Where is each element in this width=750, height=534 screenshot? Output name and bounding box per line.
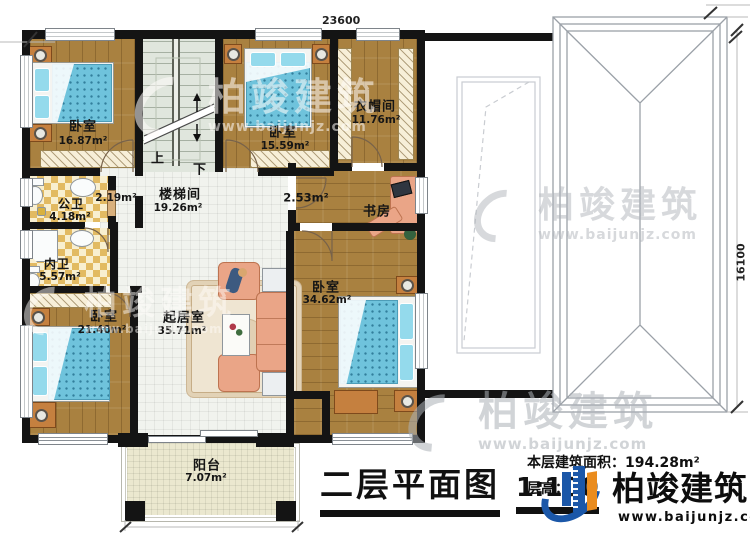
window-public-bath-left <box>20 178 33 207</box>
armchair-bottom <box>218 354 260 392</box>
bedroom4-pillow1 <box>399 303 414 340</box>
wall-bedroom3-top-a <box>22 286 106 293</box>
label-corridor-area: 2.19m² <box>95 193 136 204</box>
bedroom4-bench <box>334 390 378 414</box>
cloakroom-wardrobe-right <box>398 48 414 160</box>
window-bedroom4-right <box>415 293 428 369</box>
wall-pubbath-right-a <box>108 176 116 190</box>
label-balcony-area: 7.07m² <box>185 473 226 484</box>
stair-rail <box>172 36 180 166</box>
label-private-bath-name: 内卫 <box>44 258 70 270</box>
label-public-bath-area: 4.18m² <box>49 212 90 223</box>
public-bath-sink-icon <box>70 178 96 197</box>
balcony-slider-panel1 <box>148 436 206 443</box>
logo-swoosh-icon <box>531 457 611 534</box>
bedroom2-nightstand-left <box>224 44 242 64</box>
drawing-title-text: 二层平面图 <box>320 458 500 512</box>
window-private-bath-left <box>20 230 33 259</box>
wall-cloak-bottom-a <box>334 163 352 171</box>
label-study-name: 书房 <box>363 206 391 219</box>
bedroom1-pillow2 <box>34 95 50 119</box>
window-bedroom3-left <box>20 325 33 418</box>
label-bedroom3-area: 21.40m² <box>78 325 127 336</box>
balcony-post-right <box>276 501 296 521</box>
side-table-bottom <box>262 372 288 396</box>
dimension-right: 16100 <box>735 243 748 281</box>
label-bedroom2-name: 卧室 <box>269 127 297 140</box>
wall-outer-right <box>417 30 425 443</box>
wall-wing-top <box>425 33 553 41</box>
label-hallway-area: 2.53m² <box>283 192 328 204</box>
label-living-room-name: 起居室 <box>163 312 205 325</box>
wall-bedroom2-cloak <box>330 30 338 171</box>
wall-privbath-right <box>110 222 118 293</box>
window-cloakroom-top <box>356 28 400 41</box>
label-cloakroom-name: 衣帽间 <box>354 101 396 114</box>
window-bedroom2-top <box>255 28 322 41</box>
wall-wing-bottom <box>425 390 553 398</box>
wall-bedroom4-jog-h <box>294 391 330 399</box>
dimension-top: 23600 <box>322 14 360 27</box>
bedroom3-pillow1 <box>32 332 48 362</box>
wall-living-bedroom4 <box>286 231 294 443</box>
wall-hall-study-a <box>288 163 296 176</box>
logo-company-url: www.baijunjz.com <box>618 510 750 525</box>
label-stairs-up: 上 <box>151 153 165 166</box>
label-bedroom4-area: 34.62m² <box>303 295 352 306</box>
balcony-slider-panel2 <box>200 430 258 437</box>
bedroom2-pillow2 <box>280 52 306 67</box>
window-bedroom1-top <box>45 28 115 41</box>
bedroom3-pillow2 <box>32 366 48 396</box>
label-bedroom1-name: 卧室 <box>69 121 97 134</box>
watermark-bottom-right: 柏竣建筑 www.baijunjz.com <box>406 392 658 453</box>
watermark-swoosh-icon <box>463 178 538 252</box>
label-bedroom4-name: 卧室 <box>312 282 340 295</box>
label-private-bath-area: 5.57m² <box>39 272 80 283</box>
cloakroom-wardrobe-left <box>336 48 352 160</box>
wall-study-bedroom4-a <box>288 223 300 231</box>
window-bedroom3-bottom <box>38 433 108 445</box>
wall-stair-bedroom2 <box>215 30 223 172</box>
label-stairs-down: 下 <box>193 164 207 177</box>
wall-balcony-stub-left <box>118 433 148 447</box>
window-study-right <box>415 177 428 214</box>
wall-bath-divider-a <box>22 222 85 229</box>
wall-bedroom3-right <box>130 286 138 443</box>
wall-study-bedroom4-b <box>332 223 425 231</box>
floor-drain-icon <box>37 207 46 216</box>
bedroom3-wardrobe <box>26 293 112 308</box>
wall-bedroom1-stair-a <box>135 30 143 176</box>
label-stairwell-name: 楼梯间 <box>159 189 201 202</box>
floor-plan-page: 卧室 16.87m² 卧室 15.59m² 衣帽间 11.76m² 楼梯间 19… <box>0 0 750 534</box>
company-logo: 柏竣建筑 www.baijunjz.com <box>536 464 750 532</box>
bedroom1-wardrobe <box>40 150 135 168</box>
logo-building-icon <box>587 471 597 511</box>
bedroom4-pillow2 <box>399 344 414 381</box>
label-balcony-name: 阳台 <box>193 460 221 473</box>
label-bedroom1-area: 16.87m² <box>59 136 108 147</box>
coffee-table-flowers <box>228 322 244 338</box>
label-stairwell-area: 19.26m² <box>154 203 203 214</box>
label-living-room-area: 35.71m² <box>158 326 207 337</box>
logo-building-icon <box>562 472 571 506</box>
watermark-roof: 柏竣建筑 www.baijunjz.com <box>472 188 702 243</box>
wall-balcony-stub-right <box>256 433 294 447</box>
wall-bedroom4-jog-v <box>322 399 330 437</box>
wall-bedroom2-bottom <box>258 168 334 176</box>
private-bath-sink-icon <box>70 230 94 247</box>
bedroom2-nightstand-right <box>312 44 330 64</box>
side-table-top <box>262 268 288 292</box>
label-public-bath-name: 公卫 <box>58 198 84 210</box>
label-bedroom3-name: 卧室 <box>90 311 118 324</box>
wall-cloak-bottom-b <box>384 163 425 171</box>
window-bedroom1-left <box>20 55 33 128</box>
bedroom4-nightstand-top <box>396 276 418 294</box>
balcony-post-left <box>125 501 145 521</box>
window-bedroom4-bottom <box>332 433 413 445</box>
person-head <box>238 268 247 277</box>
wall-bedroom1-bottom <box>22 168 100 176</box>
label-bedroom2-area: 15.59m² <box>261 141 310 152</box>
logo-building-icon <box>573 466 585 512</box>
bedroom1-pillow1 <box>34 68 50 92</box>
logo-company-name: 柏竣建筑 <box>612 472 748 505</box>
bedroom2-pillow1 <box>250 52 276 67</box>
label-cloakroom-area: 11.76m² <box>352 115 401 126</box>
